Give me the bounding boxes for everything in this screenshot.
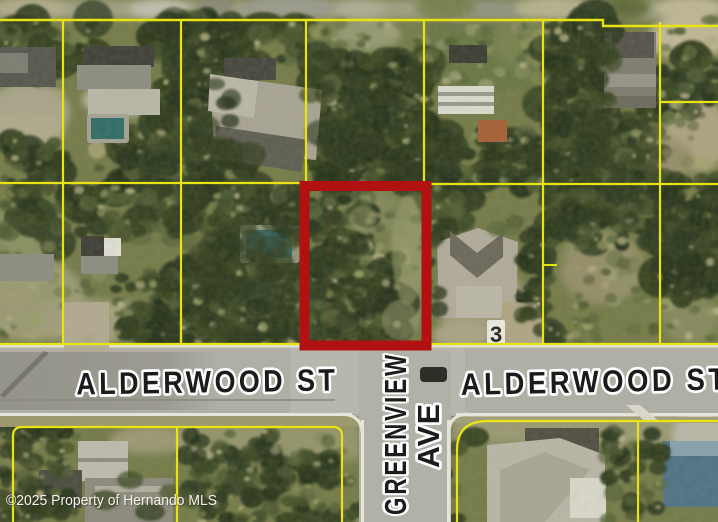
svg-text:GREENVIEW: GREENVIEW [378, 352, 413, 515]
svg-text:ALDERWOOD ST: ALDERWOOD ST [460, 361, 718, 402]
svg-text:©2025 Property of Hernando MLS: ©2025 Property of Hernando MLS [6, 492, 217, 509]
svg-text:ALDERWOOD ST: ALDERWOOD ST [76, 362, 339, 401]
svg-text:AVE: AVE [411, 402, 446, 468]
